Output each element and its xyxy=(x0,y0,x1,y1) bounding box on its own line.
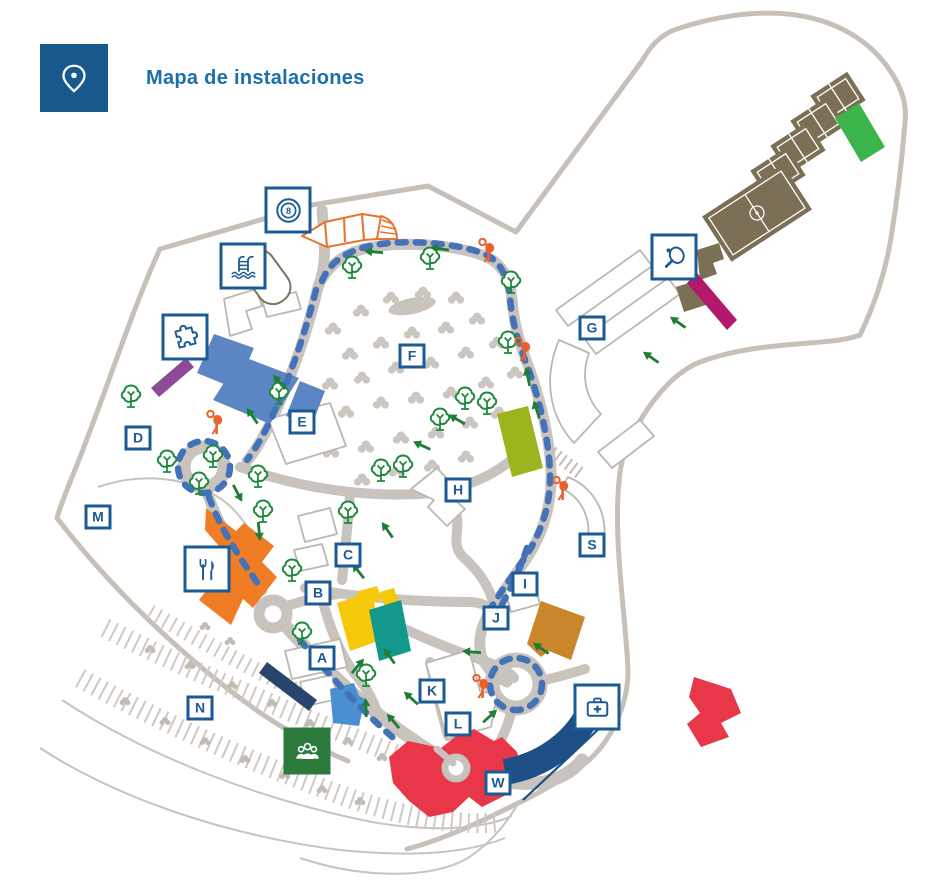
map-marker-I[interactable]: I xyxy=(512,572,539,597)
map-marker-D[interactable]: D xyxy=(125,426,152,451)
map-marker-E[interactable]: E xyxy=(289,410,316,435)
map-header: Mapa de instalaciones xyxy=(40,44,365,112)
map-marker-J[interactable]: J xyxy=(483,606,510,631)
restaurant-facility[interactable] xyxy=(184,546,231,593)
map-marker-L[interactable]: L xyxy=(445,712,472,737)
people-icon xyxy=(289,733,325,769)
map-marker-W[interactable]: W xyxy=(485,771,512,796)
map-canvas: 8 xyxy=(0,0,937,895)
playground-icon xyxy=(509,337,537,365)
table-tennis-icon xyxy=(656,239,692,275)
map-marker-S[interactable]: S xyxy=(579,533,606,558)
facilities-map-page: Mapa de instalaciones 8 xyxy=(0,0,937,895)
medical-service-facility[interactable] xyxy=(574,684,621,731)
swimming-pool-facility[interactable] xyxy=(220,243,267,290)
racket-club-facility[interactable] xyxy=(651,234,698,281)
map-overlay: ABCDEFGHIJKLMNSW xyxy=(0,0,937,895)
page-title: Mapa de instalaciones xyxy=(146,67,365,90)
billiards-facility[interactable] xyxy=(265,187,312,234)
map-marker-F[interactable]: F xyxy=(399,344,426,369)
playground-icon xyxy=(201,410,229,438)
map-marker-G[interactable]: G xyxy=(579,316,606,341)
pool-icon xyxy=(225,248,261,284)
location-pin-icon xyxy=(40,44,108,112)
meeting-point-facility[interactable] xyxy=(284,728,331,775)
first-aid-icon xyxy=(579,689,615,725)
miniclub-facility[interactable] xyxy=(162,314,209,361)
restaurant-icon xyxy=(189,551,225,587)
map-marker-B[interactable]: B xyxy=(305,581,332,606)
puzzle-icon xyxy=(167,319,203,355)
playground-icon xyxy=(473,238,501,266)
map-marker-C[interactable]: C xyxy=(335,543,362,568)
billiards-icon xyxy=(270,192,306,228)
map-marker-H[interactable]: H xyxy=(445,478,472,503)
map-marker-K[interactable]: K xyxy=(419,679,446,704)
map-marker-M[interactable]: M xyxy=(85,505,112,530)
map-marker-N[interactable]: N xyxy=(187,696,214,721)
playground-icon xyxy=(547,476,575,504)
map-marker-A[interactable]: A xyxy=(309,646,336,671)
playground-icon xyxy=(467,674,495,702)
